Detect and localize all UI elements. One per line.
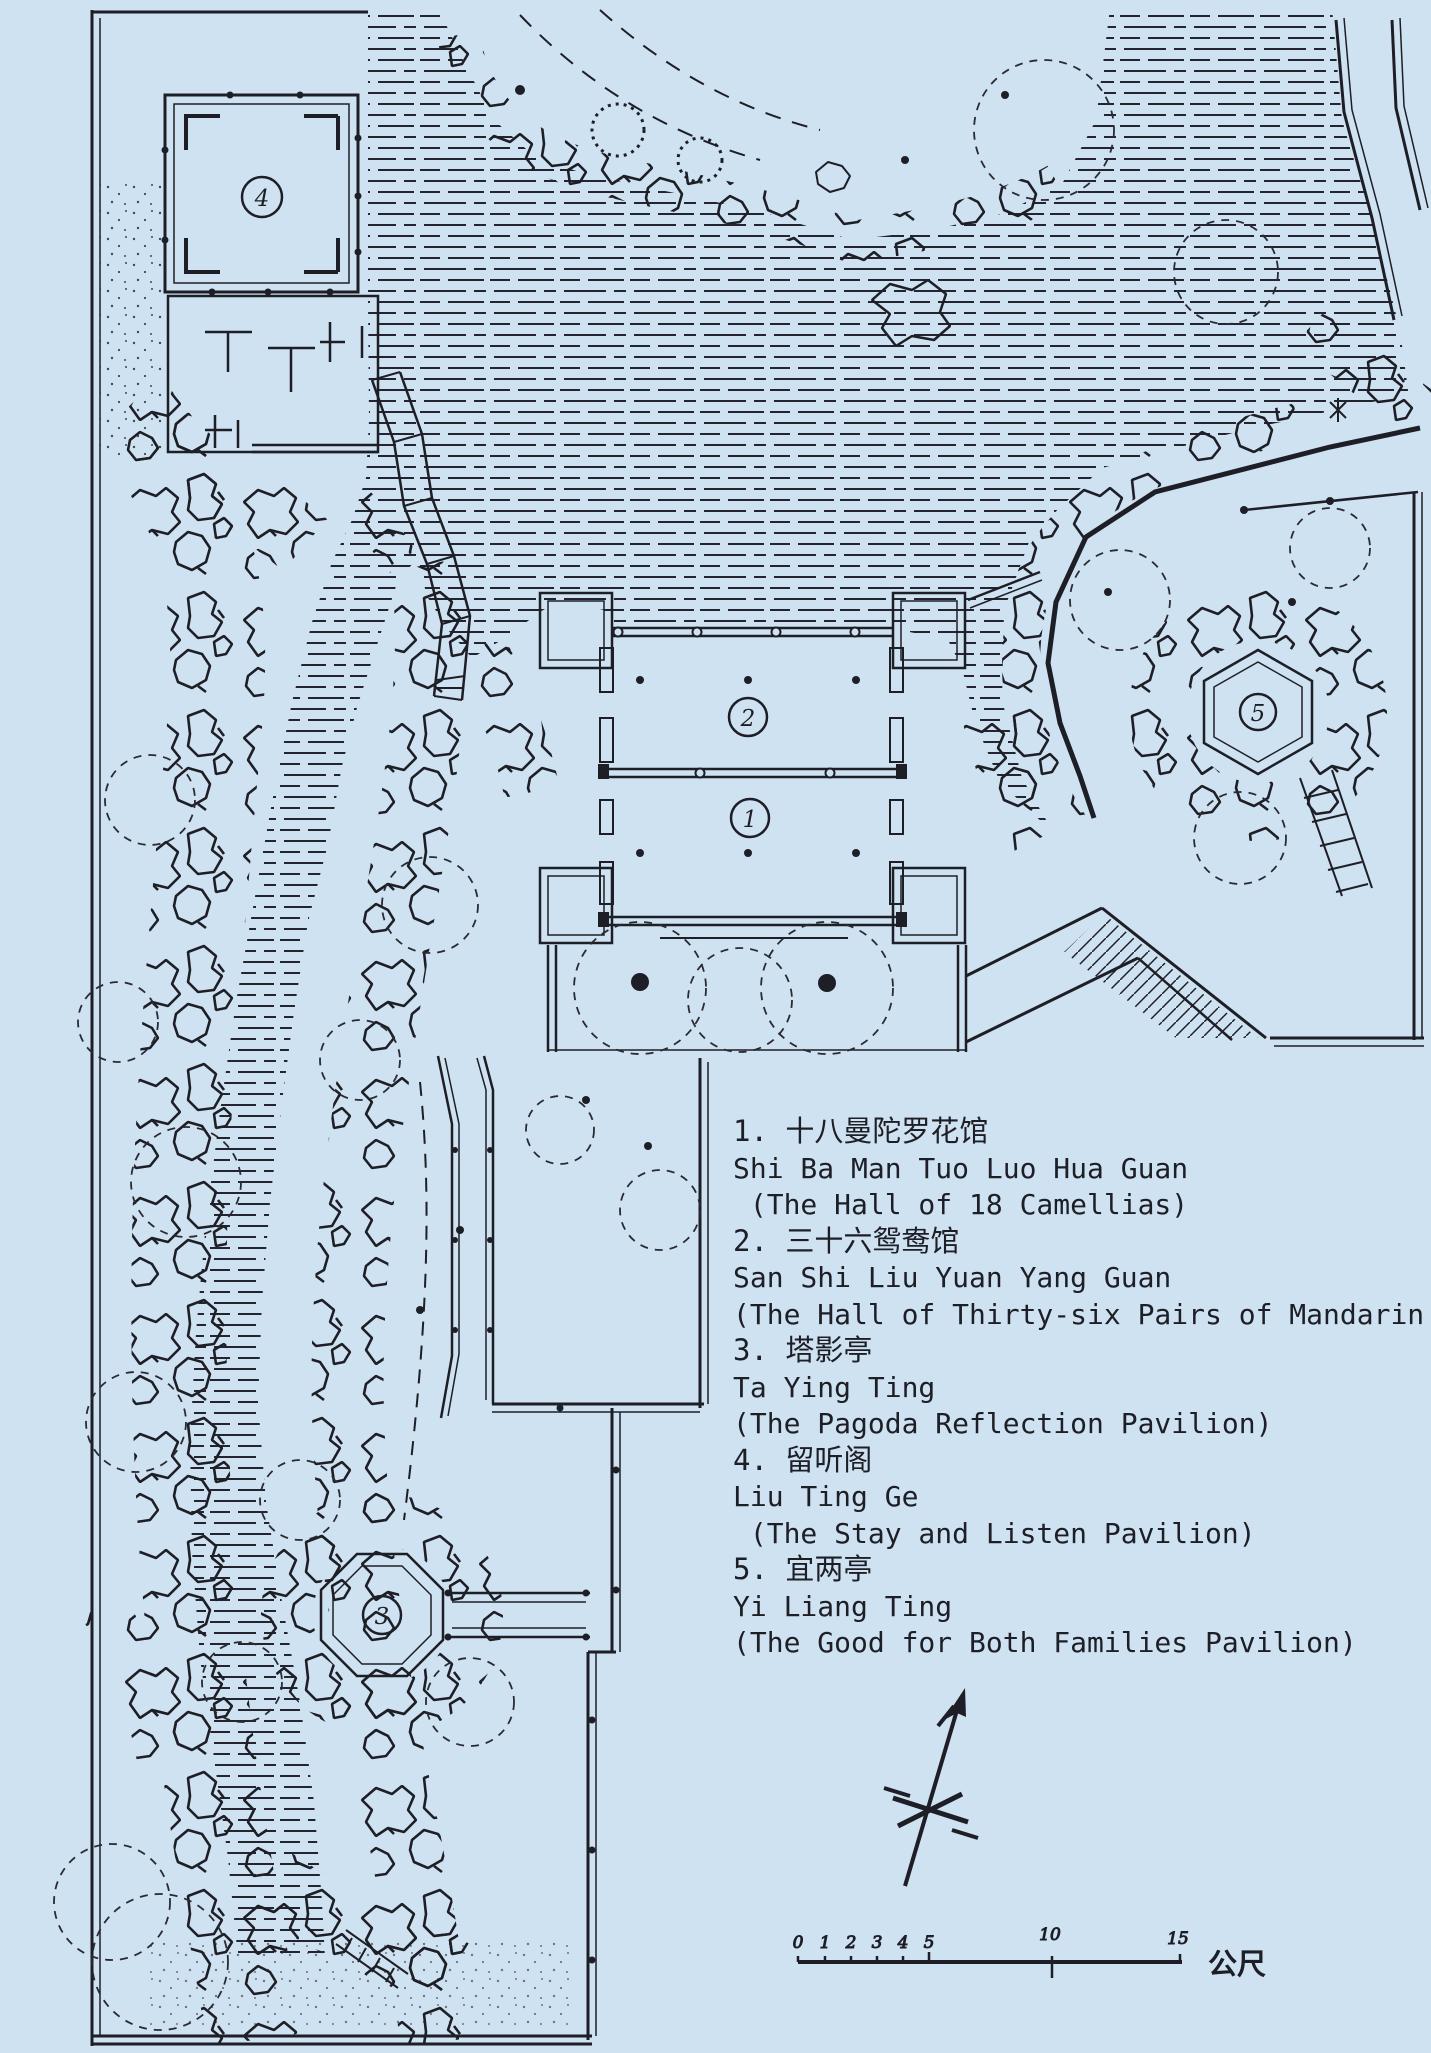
scale-tick-10: 10 <box>1039 1925 1061 1945</box>
legend-line: 3. 塔影亭 <box>733 1333 872 1367</box>
scale-tick-0: 0 <box>793 1933 804 1953</box>
scale-tick-15: 15 <box>1167 1929 1189 1949</box>
legend-line: Yi Liang Ting <box>733 1590 952 1623</box>
scale-tick-5: 5 <box>924 1933 935 1953</box>
marker-1-label: 1 <box>743 807 758 833</box>
scale-tick-2: 2 <box>845 1933 857 1953</box>
legend-line: 5. 宜两亭 <box>733 1552 872 1586</box>
legend-line: 2. 三十六鸳鸯馆 <box>733 1224 959 1258</box>
marker-5-label: 5 <box>1251 701 1266 727</box>
scale-tick-3: 3 <box>872 1933 883 1953</box>
garden-map: 2 1 3 4 5 1. 十八曼陀罗花馆 Shi Ba Man Tuo Luo … <box>0 0 1431 2053</box>
speckle-bottom <box>150 1940 570 2030</box>
legend-line: Ta Ying Ting <box>733 1371 935 1404</box>
legend-line: (The Pagoda Reflection Pavilion) <box>733 1407 1272 1440</box>
legend-line: (The Stay and Listen Pavilion) <box>733 1517 1256 1550</box>
legend-line: (The Hall of Thirty-six Pairs of Mandari… <box>733 1298 1431 1331</box>
legend-line: 4. 留听阁 <box>733 1443 872 1477</box>
garden-plan-page: 2 1 3 4 5 1. 十八曼陀罗花馆 Shi Ba Man Tuo Luo … <box>0 0 1431 2053</box>
legend-line: Shi Ba Man Tuo Luo Hua Guan <box>733 1152 1188 1185</box>
legend-line: Liu Ting Ge <box>733 1480 918 1513</box>
legend-line: 1. 十八曼陀罗花馆 <box>733 1114 988 1148</box>
legend-line: (The Hall of 18 Camellias) <box>733 1188 1188 1221</box>
legend-line: San Shi Liu Yuan Yang Guan <box>733 1261 1171 1294</box>
marker-2-label: 2 <box>740 706 756 732</box>
speckle-strip <box>100 180 162 460</box>
marker-3-label: 3 <box>375 1604 390 1630</box>
scale-tick-1: 1 <box>820 1933 831 1953</box>
marker-4-label: 4 <box>254 186 270 212</box>
legend-line: (The Good for Both Families Pavilion) <box>733 1626 1357 1659</box>
scale-tick-4: 4 <box>897 1933 909 1953</box>
scale-unit-label: 公尺 <box>1208 1947 1266 1981</box>
